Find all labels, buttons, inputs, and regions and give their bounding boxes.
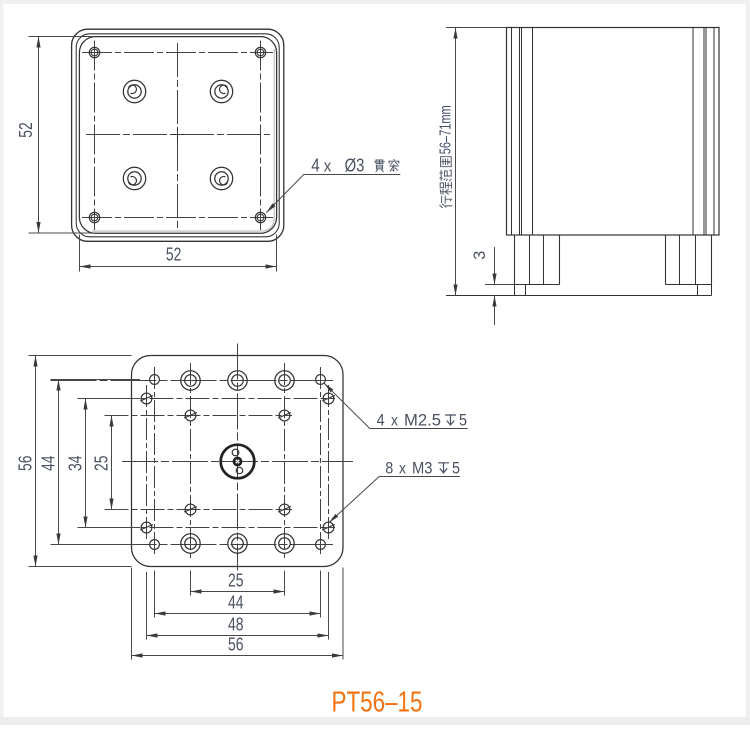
svg-text:M3: M3 [412, 458, 433, 477]
svg-text:x: x [399, 460, 406, 477]
svg-text:3: 3 [470, 251, 489, 260]
svg-text:5: 5 [459, 411, 467, 430]
svg-text:25: 25 [92, 456, 112, 472]
svg-text:8: 8 [385, 458, 393, 477]
svg-text:52: 52 [16, 122, 36, 138]
svg-text:44: 44 [39, 456, 59, 472]
svg-text:56: 56 [16, 456, 36, 472]
svg-text:56–71mm: 56–71mm [438, 105, 455, 154]
svg-text:4: 4 [377, 411, 385, 430]
svg-text:PT56–15: PT56–15 [332, 687, 423, 719]
svg-text:44: 44 [228, 592, 244, 612]
svg-text:5: 5 [452, 458, 460, 477]
svg-text:25: 25 [228, 570, 244, 590]
svg-text:48: 48 [228, 614, 244, 634]
svg-text:56: 56 [228, 634, 244, 654]
svg-text:M2.5: M2.5 [404, 411, 441, 430]
svg-text:34: 34 [66, 456, 86, 472]
svg-text:x: x [391, 413, 398, 430]
svg-text:Ø3: Ø3 [345, 156, 365, 176]
svg-text:x: x [324, 157, 332, 176]
svg-text:4: 4 [311, 156, 320, 176]
svg-text:52: 52 [166, 245, 182, 265]
